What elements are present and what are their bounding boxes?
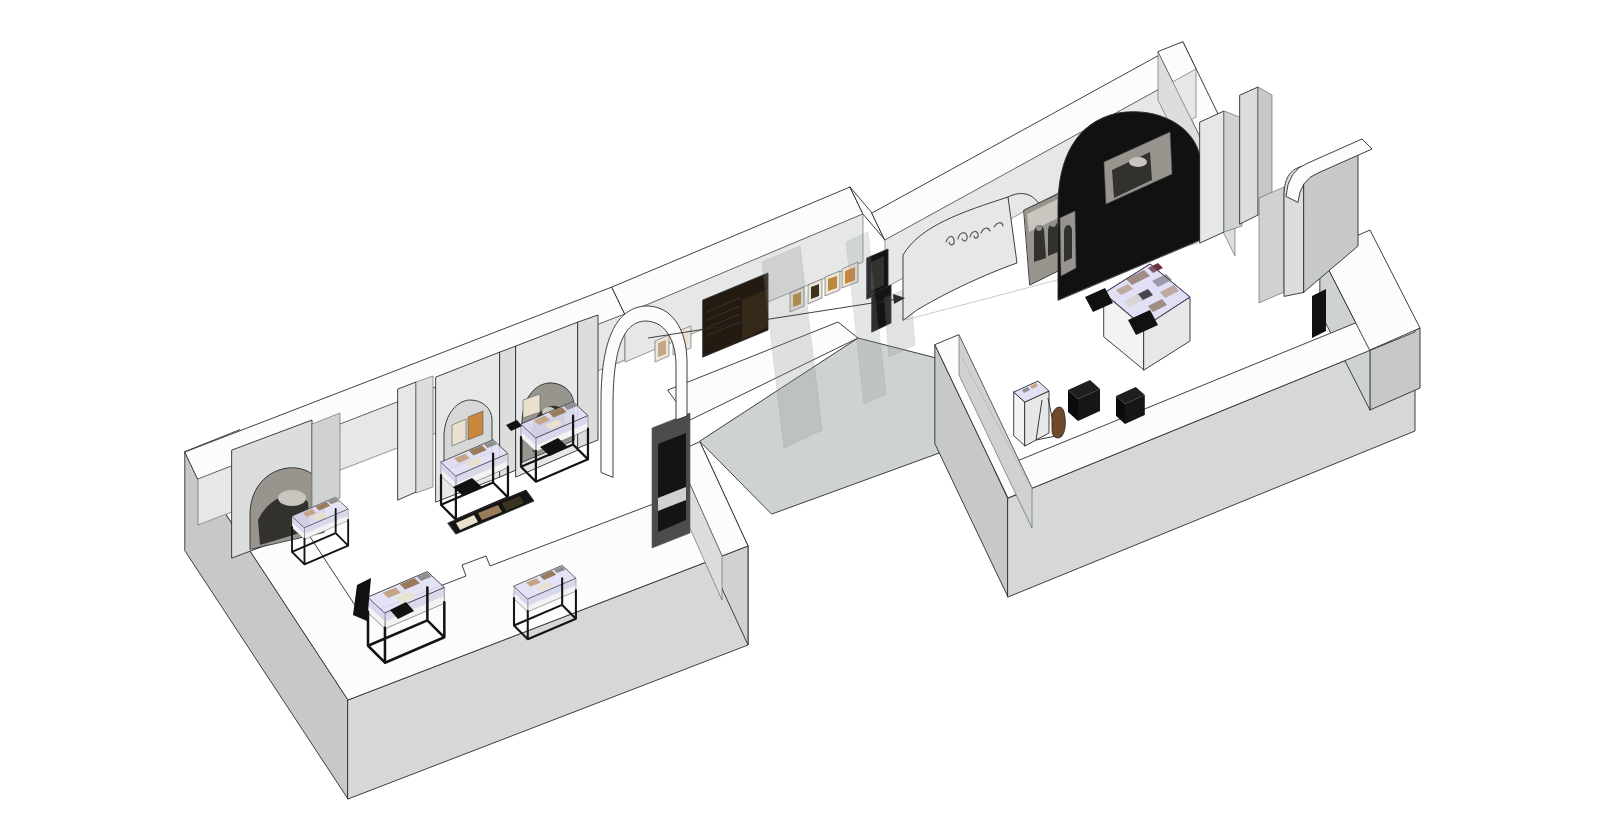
cube-vitrine <box>1014 381 1049 446</box>
photo-figure <box>1064 225 1072 262</box>
render-canvas <box>0 0 1600 821</box>
pilaster <box>1200 111 1224 243</box>
model-viewport[interactable] <box>0 0 1600 821</box>
alcove-side-slab <box>312 413 340 510</box>
figure-sculpture <box>1052 407 1065 438</box>
northeast-wall-sliver <box>1259 187 1284 303</box>
pilaster-side <box>416 376 433 493</box>
photo-figure <box>1048 222 1058 256</box>
mural-highlight <box>278 490 306 506</box>
corner-pilaster <box>1240 87 1258 224</box>
pilaster-side <box>1224 111 1242 232</box>
doorway-gap <box>1312 289 1326 338</box>
pilaster <box>398 382 416 500</box>
doorway-dark-panel <box>658 433 686 532</box>
